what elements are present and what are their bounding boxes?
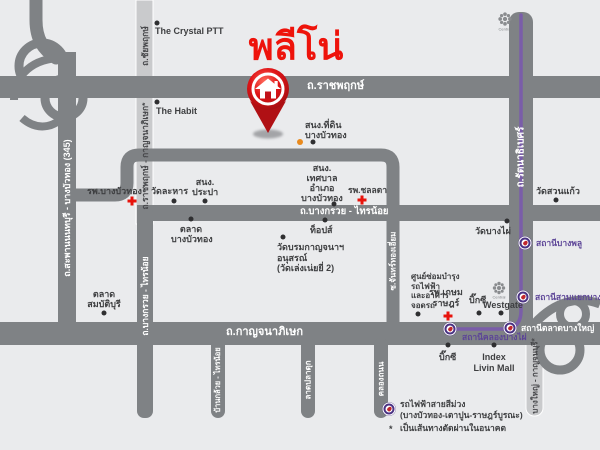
poi-label-waterworks: สนง. ประปา (192, 177, 218, 197)
mrt-station-icon-bangphlu (519, 237, 532, 250)
project-location-dot (297, 139, 303, 145)
ratchaphruek-road (0, 76, 600, 98)
poi-label-municipal-office: สนง. เทศบาล อำเภอ บางบัวทอง (298, 163, 346, 203)
poi-dot-talat-sombatburi (102, 311, 107, 316)
poi-label-tops: ท็อปส์ (310, 225, 333, 235)
poi-label-the-habit: The Habit (156, 106, 197, 116)
legend-mrt-station-icon (383, 403, 396, 416)
poi-dot-wat-suan-kaew (554, 198, 559, 203)
road-label-ratchaphruek: ถ.ราชพฤกษ์ (307, 80, 364, 93)
legend-purple-line-route: (บางบัวทอง-เตาปูน-ราษฎร์บูรณะ) (400, 411, 523, 421)
poi-dot-wat-bangphai (505, 219, 510, 224)
location-pin-icon (247, 68, 289, 139)
poi-label-bangbuathong-hospital: รพ.บางบัวทอง (87, 186, 142, 196)
map-canvas: พลีโน่ ถ.ราชพฤกษ์ ถ.บางกรวย - ไทรน้อย ถ.… (0, 0, 600, 450)
poi-label-crystal-ptt: The Crystal PTT (155, 26, 224, 36)
road-label-khlong-thanon: คลองถนน (375, 362, 388, 397)
mrt-station-icon-talat-bangyai (504, 322, 517, 335)
poi-dot-bigc-bangyai (446, 343, 451, 348)
station-label-khlong-bangphai: สถานีคลองบางไผ่ (462, 333, 527, 343)
poi-dot-bigc-westgate (477, 311, 482, 316)
road-label-ban-kluai-sainoi: บ้านกล้วย - ไทรน้อย (212, 347, 224, 412)
poi-dot-wat-borommakanchana (281, 235, 286, 240)
road-label-lat-pla-duk: ลาดปลาดุก (302, 360, 315, 399)
poi-label-wat-suan-kaew: วัดสวนแก้ว (536, 186, 580, 196)
poi-label-index-livin-mall: Index Livin Mall (472, 352, 516, 373)
legend-asterisk: * (389, 424, 393, 434)
road-label-bangkruai-sainoi-h: ถ.บางกรวย - ไทรน้อย (300, 207, 389, 218)
legend-purple-line-label: รถไฟฟ้าสายสีม่วง (400, 400, 465, 410)
poi-dot-talat-bangbuathong (189, 217, 194, 222)
road-label-345: ถ.สะพานนนทบุรี - บางบัวทอง (345) (60, 139, 74, 276)
poi-label-westgate: Westgate (483, 300, 523, 310)
station-label-bangphlu: สถานีบางพลู (536, 239, 582, 249)
hospital-cross-icon-chonlada (358, 196, 367, 205)
hospital-cross-icon-bangbuathong (128, 197, 137, 206)
mrt-station-icon-khlong-bangphai (444, 323, 457, 336)
poi-dot-tops (323, 218, 328, 223)
road-label-kanchanaphisek: ถ.กาญจนาภิเษก (226, 326, 303, 339)
central-logo-caption: Central (493, 295, 506, 300)
central-logo-icon (492, 281, 506, 295)
station-label-talat-bangyai: สถานีตลาดบางใหญ่ (521, 324, 594, 334)
road-label-bangyai-kanchanaburi: บางใหญ่ - กาญจนบุรี* (529, 338, 542, 413)
poi-label-chonlada-hospital: รพ.ชลลดา (348, 186, 387, 196)
central-logo-icon-north (498, 12, 513, 27)
poi-dot-land-office (311, 140, 316, 145)
poi-label-wat-lahan: วัดละหาร (151, 186, 188, 196)
hospital-cross-icon-kasemrad (444, 312, 453, 321)
mrt-station-icon-samyaek-bangyai (517, 291, 530, 304)
poi-dot-municipal-office (332, 202, 337, 207)
poi-label-kasemrad-hospital: รพ.เกษม ราษฎร์ (426, 287, 466, 308)
poi-dot-crystal-ptt (155, 21, 160, 26)
poi-label-land-office: สนง.ที่ดิน บางบัวทอง (305, 120, 347, 141)
poi-dot-index-livin-mall (492, 343, 497, 348)
poi-label-talat-sombatburi: ตลาด สมบัติบุรี (84, 289, 124, 309)
poi-label-wat-bangphai: วัดบางไผ่ (475, 226, 511, 236)
poi-dot-mrt-depot (416, 312, 421, 317)
poi-dot-the-habit (155, 100, 160, 105)
road-label-bangkruai-sainoi-v: ถ.บางกรวย - ไทรน้อย (138, 256, 152, 335)
poi-dot-wat-lahan (172, 199, 177, 204)
road-label-chaiyaphruek: ถ.ชัยพฤกษ์ (138, 26, 152, 66)
poi-label-wat-borommakanchana: วัดบรมกาญจนาฯ อนุสรณ์ (วัดเล่งเน่ยยี่ 2) (277, 242, 344, 274)
legend-future-road-note: เป็นเส้นทางตัดผ่านในอนาคต (400, 424, 506, 434)
poi-dot-waterworks (203, 199, 208, 204)
page-title: พลีโน่ (249, 16, 344, 77)
poi-dot-westgate (499, 311, 504, 316)
road-label-rattanathibet: ถ.รัตนาธิเบศร์ (514, 127, 529, 188)
road-label-chan-thong-iam: ซ.จันทร์ทองเอี่ยม (387, 232, 400, 291)
station-label-samyaek-bangyai: สถานีสามแยกบางใหญ่ (535, 293, 600, 303)
central-logo-caption-north: Central (499, 27, 512, 32)
poi-label-talat-bangbuathong: ตลาด บางบัวทอง (171, 224, 211, 244)
poi-label-bigc-bangyai: บิ๊กซี (439, 352, 456, 362)
